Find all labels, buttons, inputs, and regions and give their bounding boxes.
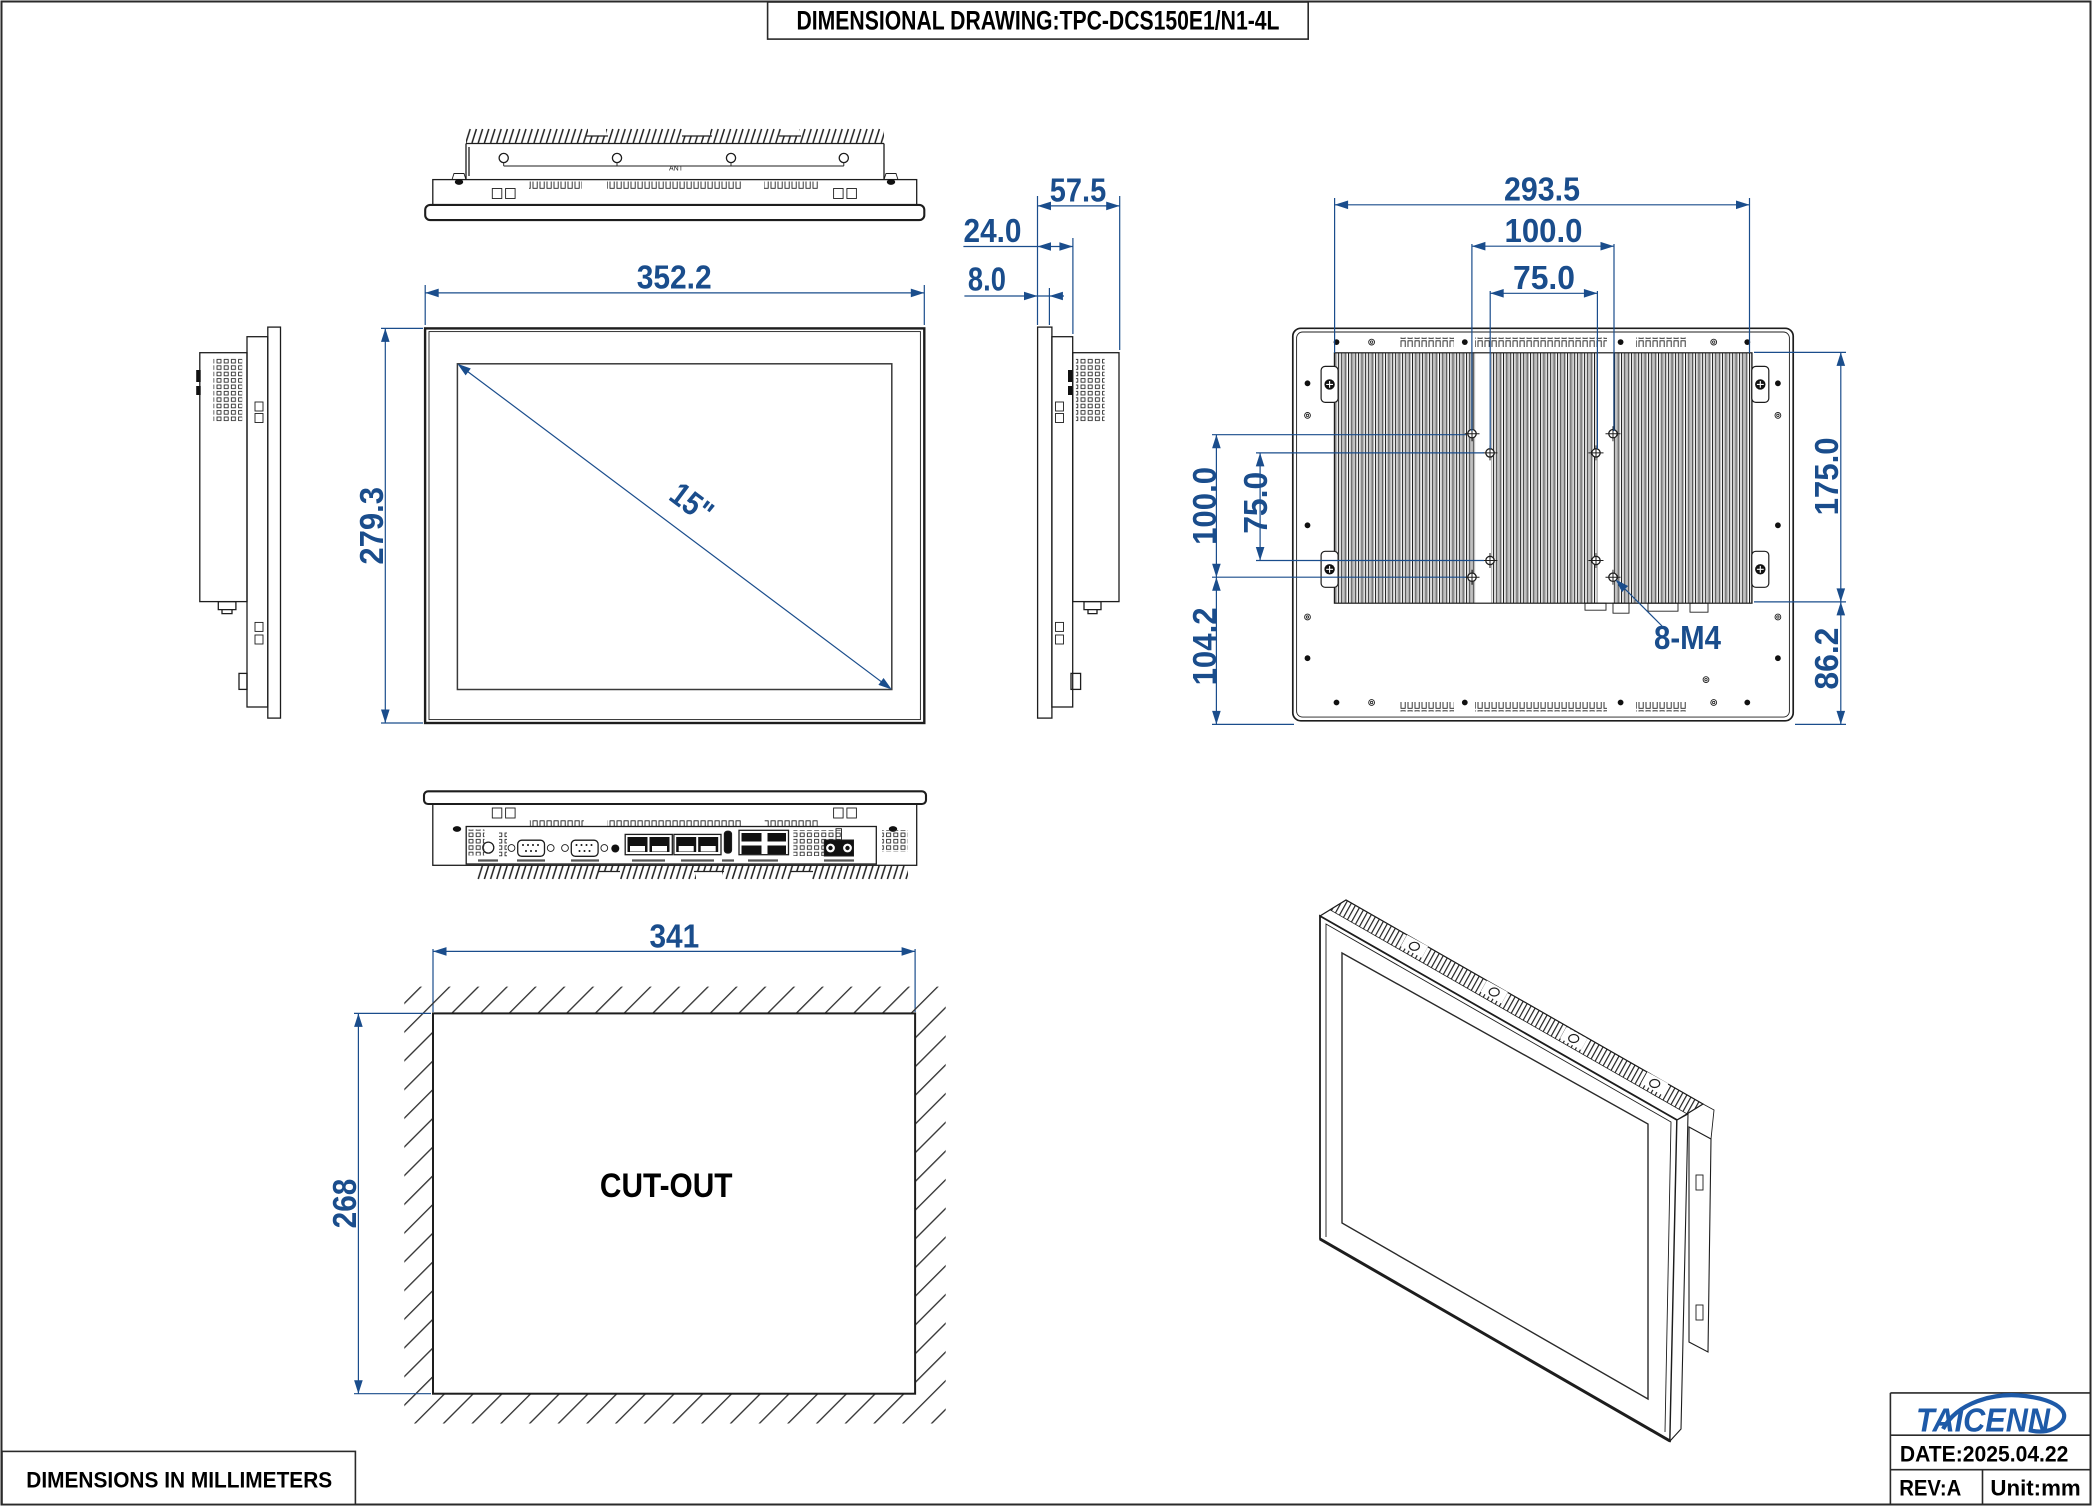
svg-text:175.0: 175.0 <box>1808 437 1845 515</box>
svg-text:279.3: 279.3 <box>353 487 390 565</box>
svg-text:100.0: 100.0 <box>1186 467 1223 545</box>
svg-text:293.5: 293.5 <box>1504 171 1580 208</box>
svg-text:TAICENN: TAICENN <box>1916 1402 2051 1439</box>
svg-text:104.2: 104.2 <box>1186 607 1223 685</box>
svg-text:75.0: 75.0 <box>1237 472 1274 534</box>
svg-text:100.0: 100.0 <box>1505 212 1583 249</box>
svg-text:57.5: 57.5 <box>1050 172 1106 209</box>
svg-text:268: 268 <box>326 1179 363 1229</box>
svg-text:341: 341 <box>649 918 699 955</box>
svg-text:24.0: 24.0 <box>964 212 1022 249</box>
svg-text:CUT-OUT: CUT-OUT <box>600 1167 733 1205</box>
svg-text:8.0: 8.0 <box>968 260 1006 297</box>
svg-text:Unit:mm: Unit:mm <box>1990 1476 2080 1501</box>
svg-text:75.0: 75.0 <box>1513 259 1575 296</box>
svg-text:86.2: 86.2 <box>1808 628 1845 690</box>
svg-text:DATE:2025.04.22: DATE:2025.04.22 <box>1900 1442 2068 1467</box>
svg-text:8-M4: 8-M4 <box>1654 619 1722 656</box>
svg-text:DIMENSIONS IN MILLIMETERS: DIMENSIONS IN MILLIMETERS <box>26 1468 332 1493</box>
svg-text:DIMENSIONAL DRAWING:TPC-DCS150: DIMENSIONAL DRAWING:TPC-DCS150E1/N1-4L <box>797 6 1280 36</box>
svg-text:REV:A: REV:A <box>1899 1476 1961 1501</box>
svg-text:352.2: 352.2 <box>637 259 712 296</box>
svg-text:ANT: ANT <box>669 166 684 173</box>
